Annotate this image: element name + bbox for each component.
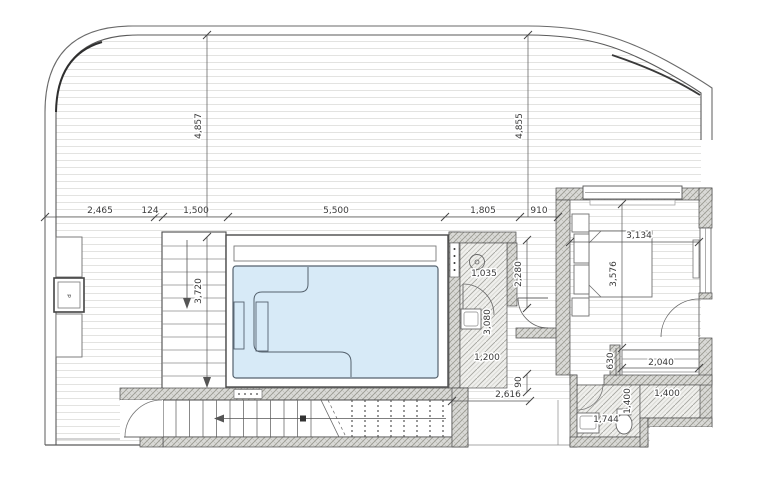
corridor-wall-bottom bbox=[163, 437, 468, 447]
dim-1805: 1,805 bbox=[470, 206, 496, 216]
dim-1400-h: 1,400 bbox=[654, 389, 680, 399]
dim-2465: 2,465 bbox=[87, 206, 113, 216]
exterior-mask bbox=[650, 427, 712, 447]
nightstand-bottom bbox=[572, 298, 589, 316]
floor-plan-page: d bbox=[0, 0, 768, 503]
dim-1400-v: 1,400 bbox=[623, 388, 633, 414]
outdoor-cabinet-run: d bbox=[54, 237, 84, 357]
dim-3080: 3,080 bbox=[483, 309, 493, 335]
dim-2040: 2,040 bbox=[648, 358, 674, 368]
dim-3134: 3,134 bbox=[626, 231, 652, 241]
bathroom-wall-left bbox=[570, 375, 577, 447]
bathroom-wall-bottom-left bbox=[570, 437, 648, 447]
appliance-label: d bbox=[67, 294, 73, 298]
dim-2280: 2,280 bbox=[514, 261, 524, 287]
dim-910: 910 bbox=[530, 206, 547, 216]
direction-node bbox=[300, 416, 306, 422]
pool-area bbox=[226, 235, 448, 387]
dim-1200: 1,200 bbox=[474, 353, 500, 363]
bedroom-wall-right-mid bbox=[699, 293, 712, 299]
dim-1035: 1,035 bbox=[471, 269, 497, 279]
bedroom-wall-right-upper bbox=[699, 188, 712, 228]
dim-4855: 4,855 bbox=[515, 113, 525, 139]
hall-wall-stub bbox=[516, 328, 558, 338]
corridor-wall-right bbox=[452, 388, 468, 447]
dim-3576: 3,576 bbox=[609, 261, 619, 287]
staircase-corridor bbox=[120, 388, 468, 447]
pool-bench bbox=[234, 246, 436, 261]
dim-5500: 5,500 bbox=[323, 206, 349, 216]
bathroom-wall-step bbox=[640, 418, 648, 447]
corridor-wall-top bbox=[120, 388, 468, 400]
dim-2616: 2,616 bbox=[495, 390, 521, 400]
window-sill bbox=[590, 200, 675, 205]
nightstand-top bbox=[572, 214, 589, 232]
corridor-door-bay bbox=[120, 400, 163, 437]
bedroom-wall-left bbox=[556, 200, 570, 375]
staircase-upper bbox=[162, 232, 226, 390]
dim-3720: 3,720 bbox=[194, 278, 204, 304]
dim-4857: 4,857 bbox=[194, 113, 204, 139]
hall-floor bbox=[468, 400, 570, 445]
bathroom-wall-top bbox=[604, 375, 712, 385]
dim-630: 630 bbox=[606, 352, 616, 369]
dim-124: 124 bbox=[141, 206, 158, 216]
shower-wall-top bbox=[449, 232, 516, 243]
bathroom bbox=[570, 375, 712, 447]
corridor-wall-bottom-left bbox=[140, 437, 163, 447]
pool-water bbox=[233, 266, 438, 378]
bed-pillow-top bbox=[574, 234, 589, 263]
bed-pillow-bottom bbox=[574, 265, 589, 294]
floor-plan-drawing: d bbox=[0, 0, 768, 503]
cabinet-upper bbox=[56, 237, 82, 277]
cabinet-lower bbox=[56, 314, 82, 357]
dim-1500: 1,500 bbox=[183, 206, 209, 216]
bathroom-wall-bottom-right bbox=[648, 418, 712, 427]
dim-90: 90 bbox=[514, 376, 524, 388]
dim-1744: 1,744 bbox=[593, 415, 619, 425]
